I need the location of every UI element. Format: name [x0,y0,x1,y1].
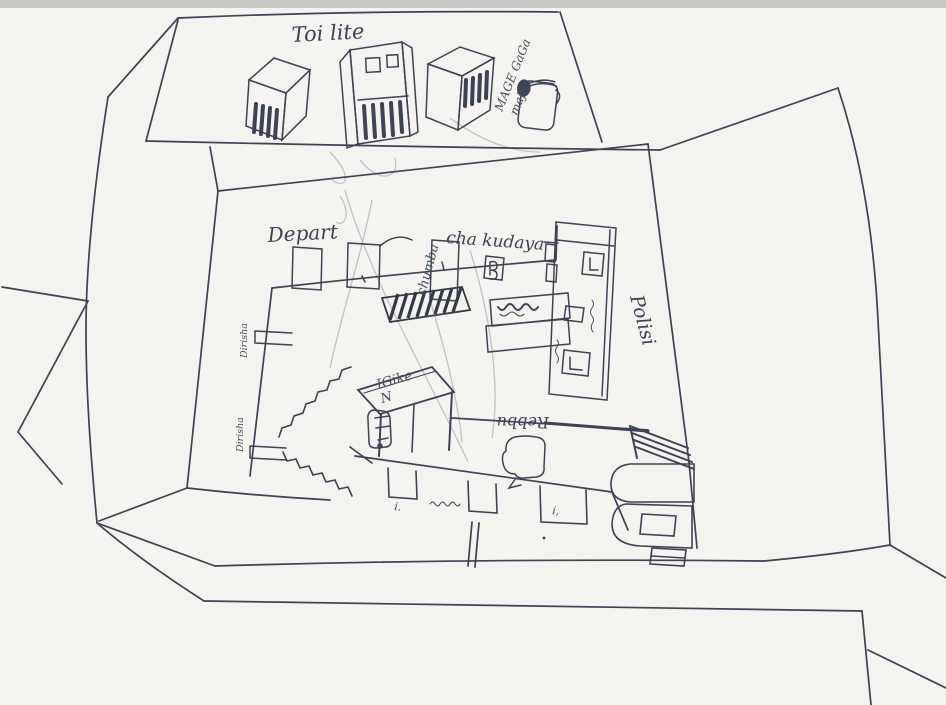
scan-edge-band [0,0,946,8]
toilet-label: Toi lite [291,19,365,47]
depart-label: Depart [266,219,339,247]
scanned-sketch-page: Toi lite MAGE GaGa mají Depart chumba ch… [0,0,946,705]
hand-drawn-map: Toi lite MAGE GaGa mají Depart chumba ch… [0,0,946,705]
rebbu-label-upside-down: Rebbu [497,413,550,432]
paper-background [0,0,946,705]
doorway-mark-left: i. [394,500,402,514]
window-bottom-label: Dirisha [235,417,246,453]
window-top-label: Dirisha [239,323,250,359]
doorway-mark-right: i, [552,504,560,518]
